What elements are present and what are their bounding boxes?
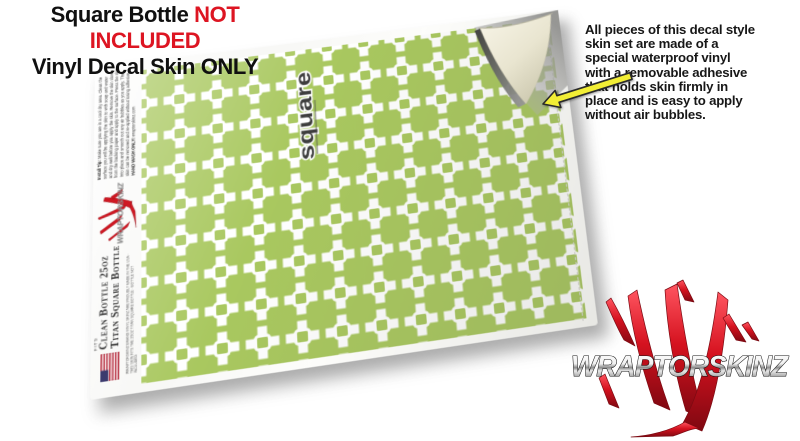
us-flag-icon — [100, 352, 119, 383]
product-image: { "header": { "title_black": "Square Bot… — [0, 0, 800, 441]
wraptorskinz-wordmark: WRAPTORSKINZ — [571, 351, 789, 383]
product-disclaimer-heading: Square Bottle NOT INCLUDED Vinyl Decal S… — [4, 2, 286, 79]
bottle-not-included-black: Square Bottle — [51, 2, 195, 27]
wraptorskinz-logo: WRAPTORSKINZ — [553, 256, 800, 441]
install-tip-body: Make sure you are in a cool dry area. Cl… — [97, 68, 131, 179]
install-tip-text: Install Tip: Make sure you are in a cool… — [96, 65, 140, 180]
square-logo: square — [290, 65, 321, 164]
hand-wash-label: HAND WASH ONLY! — [130, 138, 135, 176]
heading-line2: Vinyl Decal Skin ONLY — [4, 54, 286, 79]
mini-brand-logo: WRAPTORSKINZ — [97, 180, 138, 248]
pointer-arrow-icon — [535, 64, 635, 112]
mini-logo-wordmark: WRAPTORSKINZ — [117, 181, 125, 244]
site-label: wraptorskinz.com — [130, 106, 135, 138]
install-tip-block: Install Tip: Make sure you are in a cool… — [96, 65, 140, 180]
fine-print-text: WRAPTORSKINZ BRAND VINYL SKINZ ARE PROUD… — [126, 248, 138, 374]
fits-block: FITS Clean Bottle 25oz Titan Square Bott… — [93, 250, 127, 352]
made-in-usa-flag — [100, 352, 119, 383]
fine-print-block: WRAPTORSKINZ BRAND VINYL SKINZ ARE PROUD… — [126, 248, 138, 374]
heading-line1: Square Bottle NOT INCLUDED — [4, 2, 286, 54]
bottle-model-line2: Titan Square Bottle — [109, 250, 121, 348]
